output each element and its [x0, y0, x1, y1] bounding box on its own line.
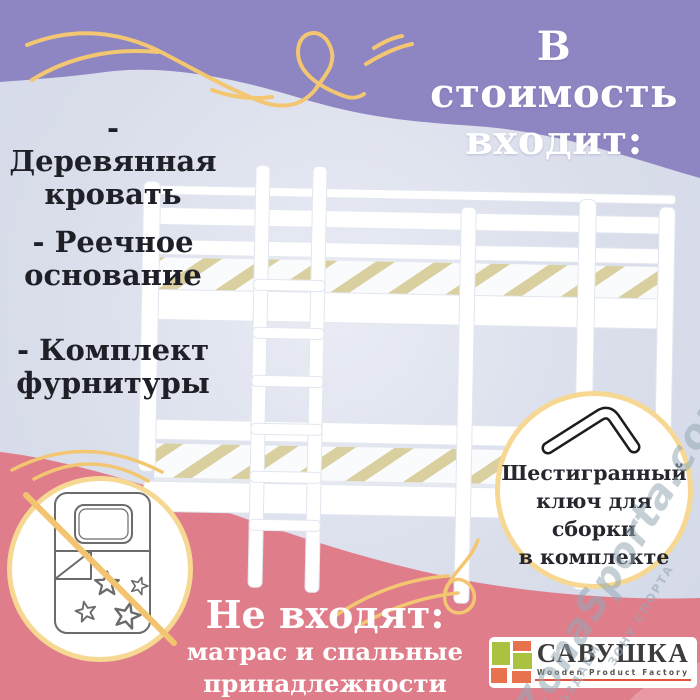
list-item-slat-base: - Реечное основание — [0, 226, 226, 292]
excludes-line2: принадлежности — [165, 668, 485, 700]
list-item-line: основание — [0, 259, 226, 292]
logo-rule — [535, 679, 691, 681]
list-item-line: фурнитуры — [0, 367, 226, 400]
hex-key-badge-line: ключ для — [501, 488, 686, 516]
logo-square-orange — [512, 671, 531, 683]
excludes-block: Не входят: матрас и спальные принадлежно… — [165, 594, 485, 699]
hex-key-badge: Шестигранный ключ для сборки в комплекте — [495, 391, 693, 589]
logo-text: САВУШКА Wooden Product Factory — [535, 639, 691, 681]
logo-brand-name: САВУШКА — [535, 639, 691, 667]
page-title: В стоимость входит: — [408, 24, 700, 164]
brand-logo: САВУШКА Wooden Product Factory — [489, 637, 697, 688]
hex-key-badge-line: сборки — [501, 516, 686, 544]
list-item-hardware-kit: - Комплект фурнитуры — [0, 334, 226, 400]
list-item-line: - Деревянная — [0, 112, 226, 178]
logo-square-orange — [491, 668, 507, 683]
list-item-line: кровать — [0, 178, 226, 211]
hex-key-badge-line: Шестигранный — [501, 460, 686, 488]
crossed-out-bedding-icon — [12, 481, 188, 657]
excludes-line1: матрас и спальные — [165, 636, 485, 668]
list-item-wooden-bed: - Деревянная кровать — [0, 112, 226, 211]
hex-key-badge-line: в комплекте — [501, 544, 686, 572]
logo-square-green — [513, 653, 532, 669]
list-item-line: - Комплект — [0, 334, 226, 367]
hex-key-icon — [540, 402, 648, 458]
list-item-line: - Реечное — [0, 226, 226, 259]
logo-square-green — [492, 642, 510, 665]
excludes-title: Не входят: — [165, 594, 485, 636]
page-title-line2: входит: — [408, 118, 700, 165]
logo-tagline: Wooden Product Factory — [535, 668, 691, 677]
hex-key-badge-text: Шестигранный ключ для сборки в комплекте — [501, 460, 686, 572]
logo-square-orange — [513, 641, 531, 651]
promo-banner: В стоимость входит: - Деревянная кровать… — [0, 0, 700, 700]
page-title-line1: В стоимость — [408, 24, 700, 118]
